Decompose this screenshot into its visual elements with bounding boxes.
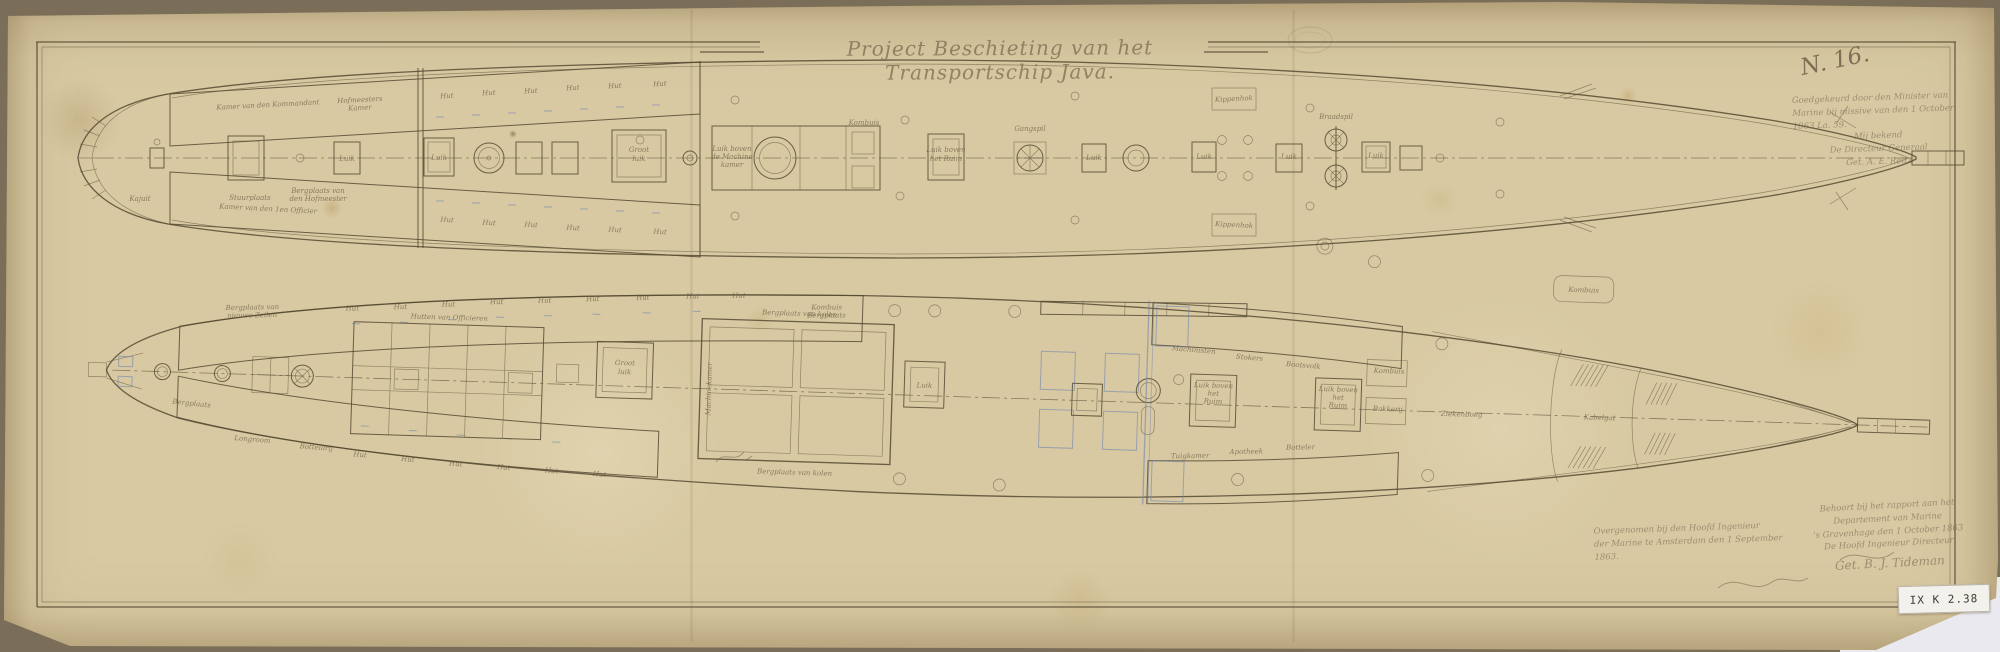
deck-label: Hut	[731, 292, 746, 300]
deck-label: Bottelarij	[298, 442, 334, 453]
deck-label: Hut	[607, 226, 622, 235]
archive-label: IX K 2.38	[1898, 584, 1991, 614]
deck-label: Kombuis	[1373, 367, 1405, 376]
deck-label: Hut	[523, 221, 538, 230]
deck-label: Kombuis	[1567, 286, 1599, 295]
deck-label: Ruim	[1203, 397, 1223, 406]
deck-label: Stuurplaats	[229, 194, 271, 202]
deck-label: het Ruim	[930, 155, 963, 163]
deck-label: de Machine	[711, 153, 753, 161]
approval-annotation: Goedgekeurd door den Minister van Marine…	[1792, 89, 1965, 171]
inner-stem-lines	[1427, 332, 1854, 505]
deck-label: Hut	[481, 219, 496, 228]
deck-label: Hut	[441, 300, 456, 308]
deck-label: Hut	[439, 92, 454, 101]
drawing-title: Project Beschieting van het Transportsch…	[760, 35, 1240, 86]
deck-label: Hut	[489, 298, 504, 306]
deck-label: Hut	[481, 89, 496, 98]
deck-label: Kajuit	[128, 195, 150, 203]
deck-label: Braadspil	[1318, 113, 1353, 121]
mid-fittings	[903, 293, 1248, 454]
deck-label: Botteler	[1285, 443, 1316, 452]
deck-label: Luik	[1195, 153, 1212, 161]
seen-annotation: Overgenomen bij den Hoofd Ingenieur der …	[1593, 518, 1814, 564]
deck-fittings	[150, 84, 1964, 236]
deck-label: Hut	[565, 84, 580, 93]
deck-label: Luik boven	[925, 146, 966, 154]
deck-label: Kippenhok	[1214, 220, 1253, 230]
deck-label: Bergplaats van	[290, 187, 345, 195]
deck-label: Machinisten	[1171, 344, 1217, 356]
deck-label: Hut	[635, 294, 650, 302]
deck-label: Hut	[352, 450, 367, 459]
deck-label: Groot	[629, 146, 649, 154]
deck-label: Apotheek	[1228, 447, 1263, 456]
deck-label: Ziekenboeg	[1440, 410, 1483, 419]
deck-label: Hut	[685, 292, 700, 300]
deck-label: Hut	[345, 304, 360, 312]
cabin-row-bottom	[176, 376, 660, 477]
deck-label: Luik	[430, 154, 447, 162]
deck-label: Kombuis	[848, 119, 880, 127]
deck-label: Hut	[585, 295, 600, 303]
deck-label: Gangspil	[1014, 125, 1045, 133]
deck-label: Hut	[496, 463, 511, 472]
deck-label: Groot	[615, 359, 636, 368]
lower-deck-plan: Bergplaats vannieuwe ZeilenHutHutHutHutH…	[85, 199, 1935, 529]
deck-label: Hut	[544, 466, 559, 475]
blue-door-marks	[436, 105, 660, 213]
deck-label: luik	[618, 368, 631, 376]
deck-label: Stokers	[1236, 353, 1264, 363]
deck-label: Hut	[537, 297, 552, 305]
deck-label: Bakkerij	[1372, 405, 1404, 414]
deck-label: Hut	[652, 228, 667, 237]
deck-label: Hut	[565, 224, 580, 233]
stern-gallery	[79, 94, 168, 224]
faint-stamp	[1288, 27, 1332, 53]
deck-label: Bootsvolk	[1285, 360, 1321, 371]
deck-label: den Hofmeester	[289, 195, 347, 203]
deck-label: Kamer	[347, 103, 373, 112]
deck-label: Luik	[1085, 154, 1102, 162]
deck-label: Kabelgat	[1583, 413, 1616, 422]
deck-label: kamer	[721, 161, 744, 169]
deck-label: Machinekamer	[704, 361, 714, 416]
deck-label: Hut	[400, 455, 415, 464]
signature-flourishes	[716, 452, 1894, 588]
deck-label: Kamer van den 1en Officier	[218, 202, 318, 215]
cabin-row-top	[178, 274, 863, 391]
deck-label: Luik	[1367, 152, 1384, 160]
deck-label: Hut	[393, 303, 408, 311]
deck-label: Hut	[439, 216, 454, 225]
deck-label: nieuwe Zeilen	[227, 311, 278, 320]
deck-label: Bergplaats van kolen	[756, 467, 833, 477]
deck-label: luik	[632, 155, 645, 163]
deck-label: Hut	[607, 82, 622, 91]
cabin-row-bottom	[170, 172, 700, 257]
deck-label: Luik boven	[711, 145, 752, 153]
hatched-gangway	[1041, 297, 1247, 320]
deck-label: Tuigkamer	[1171, 452, 1210, 461]
lower-deck-labels: Bergplaats vannieuwe ZeilenHutHutHutHutH…	[169, 242, 1620, 511]
deck-label: Hut	[652, 80, 667, 89]
deck-label: Luik	[915, 381, 932, 390]
deck-label: Bergplaats van kolen	[761, 308, 838, 318]
deck-label: Luik	[338, 155, 355, 163]
deck-label: Luik	[1280, 153, 1297, 161]
deck-label: Kamer van den Kommandant	[215, 98, 320, 111]
deck-label: Hut	[523, 87, 538, 96]
centerline	[112, 370, 1927, 427]
upper-deck-plan: KajuitStuurplaatsBergplaats vanden Hofme…	[78, 60, 1964, 258]
authorship-annotation: Behoort bij het rapport aan het Departem…	[1804, 496, 1973, 577]
deck-label: Hut	[448, 459, 463, 468]
deck-label: Hutten van Officieren	[410, 312, 489, 322]
deck-label: Hut	[591, 470, 606, 479]
blue-door-marks	[348, 301, 700, 447]
deck-label: Kippenhok	[1214, 94, 1253, 104]
deck-label: Ruim	[1327, 401, 1347, 410]
